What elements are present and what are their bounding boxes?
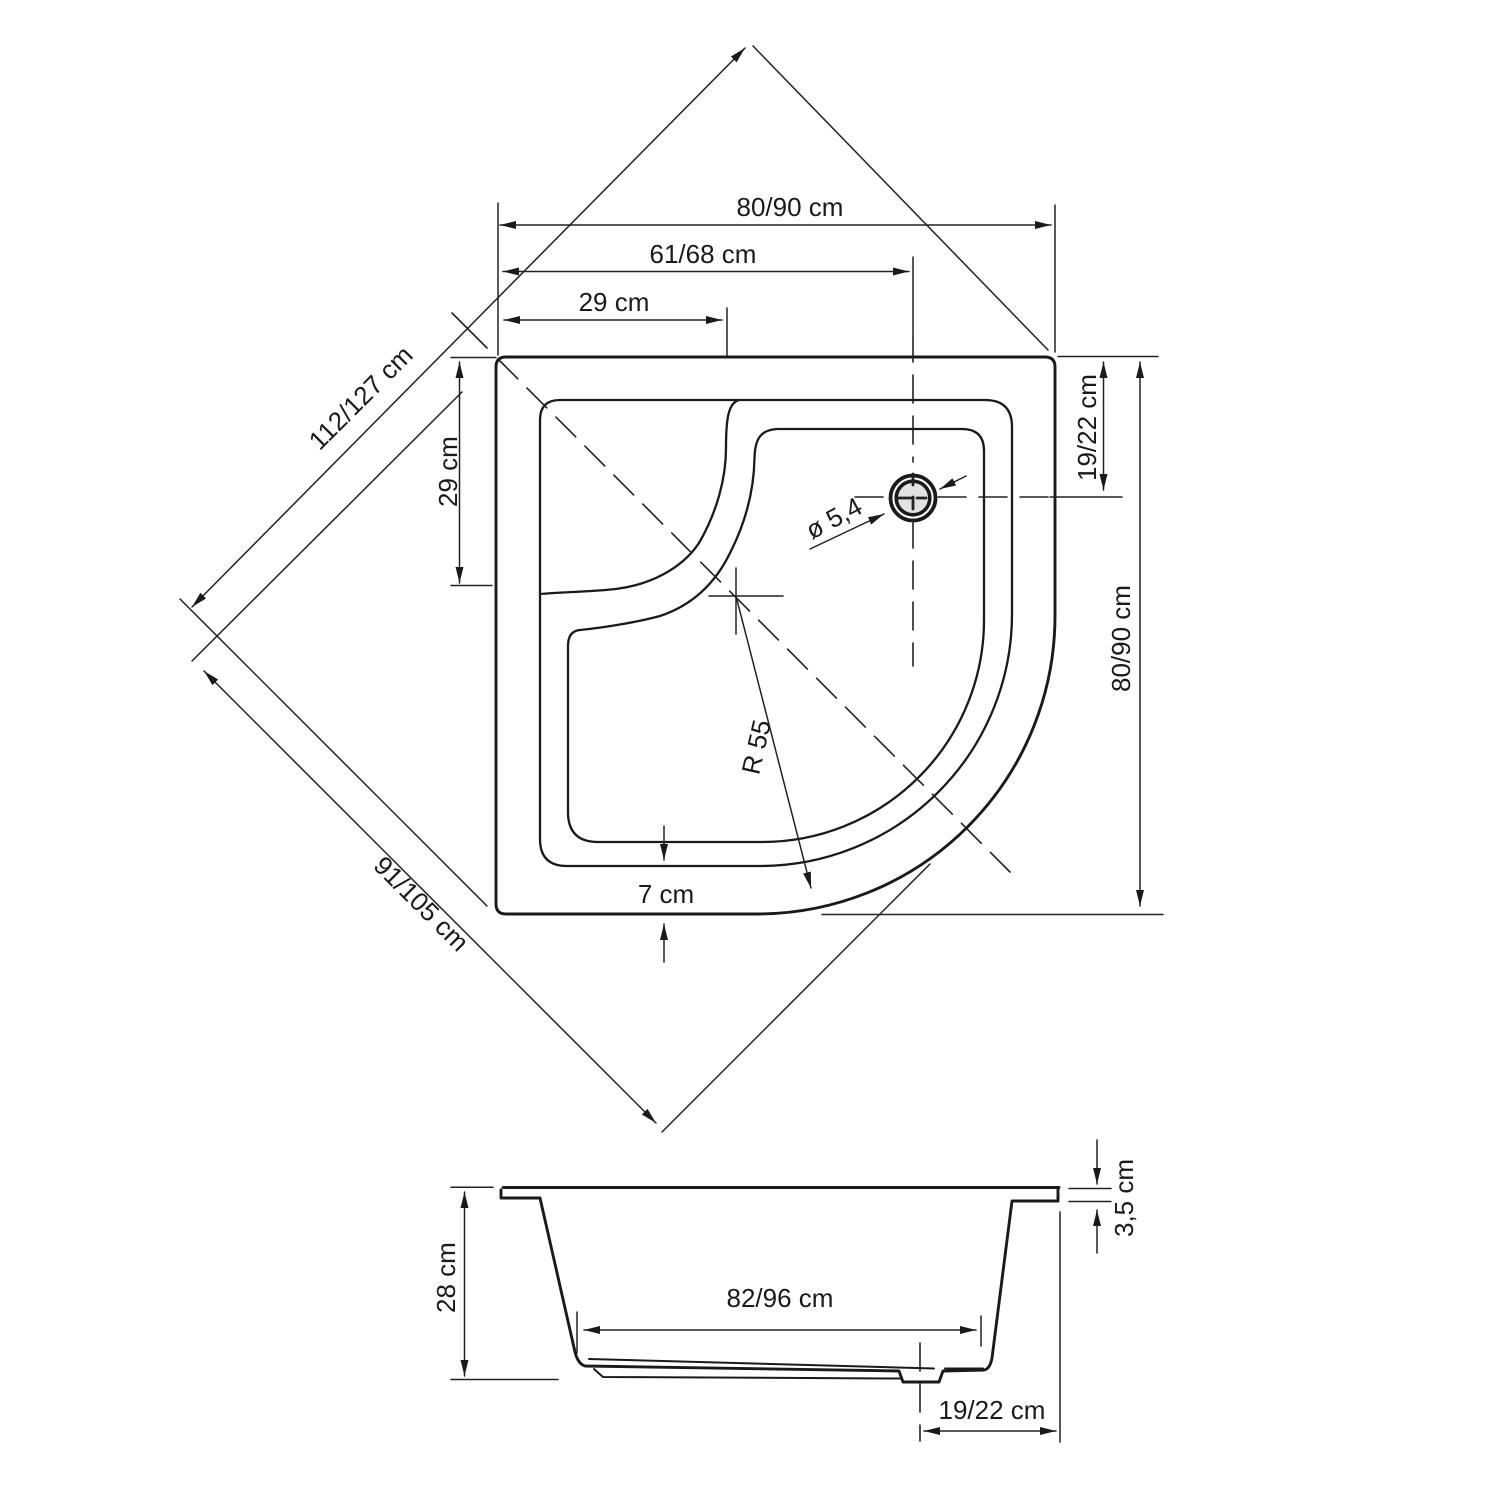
svg-text:19/22 cm: 19/22 cm (939, 1395, 1046, 1425)
svg-text:29 cm: 29 cm (433, 436, 463, 507)
svg-text:61/68 cm: 61/68 cm (650, 239, 757, 269)
svg-text:80/90 cm: 80/90 cm (1106, 585, 1136, 692)
svg-text:19/22 cm: 19/22 cm (1072, 374, 1102, 481)
svg-text:7 cm: 7 cm (638, 879, 694, 909)
svg-text:82/96 cm: 82/96 cm (727, 1283, 834, 1313)
svg-text:3,5 cm: 3,5 cm (1109, 1159, 1139, 1237)
svg-text:28 cm: 28 cm (431, 1242, 461, 1313)
svg-text:29 cm: 29 cm (579, 287, 650, 317)
svg-text:80/90 cm: 80/90 cm (737, 192, 844, 222)
